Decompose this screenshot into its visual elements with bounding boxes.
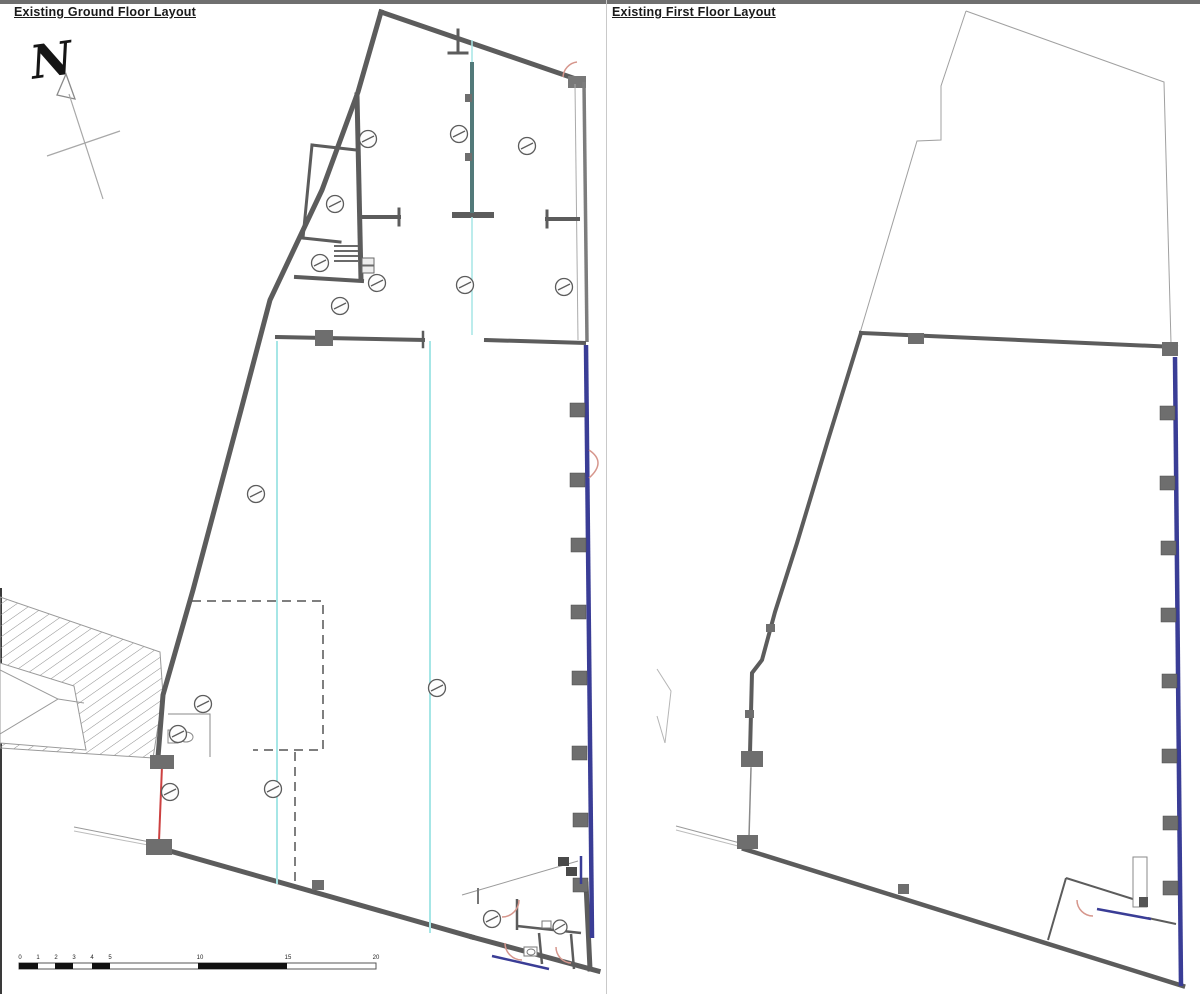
north-arrow-crossbar [47,131,120,156]
scale-label-5: 5 [108,955,112,961]
first-west-pier-lower [737,835,758,849]
neighbour-roof-faint [657,669,671,743]
scale-label-3: 3 [72,955,76,961]
scale-label-20: 20 [373,955,380,961]
west-red-segment [146,755,174,855]
scale-label-15: 15 [285,955,292,961]
marker [484,911,501,928]
first-door-swing [1077,900,1093,916]
marker [553,920,567,934]
setting-out-lines [277,40,472,933]
marker [556,279,573,296]
scale-label-0: 0 [18,955,22,961]
first-outer-walls [744,333,1183,986]
first-bottom-right-room [1048,857,1176,940]
reference-markers [162,126,573,935]
boundary-line [74,827,150,845]
scale-label-10: 10 [197,955,204,961]
first-south-wall [744,849,1183,986]
scale-bar: 0 1 2 3 4 5 10 15 20 [18,955,380,969]
mid-wall-pier [315,330,333,346]
west-wall [158,12,381,757]
scale-label-1: 1 [36,955,40,961]
marker [327,196,344,213]
mid-wall-right [486,340,584,343]
dashed-mezzanine-outline [192,601,323,886]
west-pier-upper [150,755,174,769]
fixture [1139,897,1148,907]
marker [170,726,187,743]
ground-floor-plan [0,12,598,971]
south-wall-pier [312,880,324,890]
west-pier-lower [146,839,172,855]
mid-wall-left [277,337,423,340]
marker [265,781,282,798]
east-door-swing [589,450,598,478]
neighbour-hatched-building [0,597,163,758]
scale-bar-labels: 0 1 2 3 4 5 10 15 20 [18,955,380,961]
east-window-outer [584,82,587,342]
north-arrow: N [25,30,120,199]
south-wall [170,851,472,937]
marker [312,255,329,272]
east-window-inner [575,84,578,340]
first-floor-plan [657,11,1183,986]
first-north-wall-pier [908,333,924,344]
boundary-line-first [676,826,740,846]
first-east-wall [1160,357,1181,986]
marker [369,275,386,292]
marker [519,138,536,155]
east-wall [563,62,598,938]
drawing-sheet: Existing Ground Floor Layout Existing Fi… [0,0,1200,994]
marker [248,486,265,503]
marker [360,131,377,148]
marker [429,680,446,697]
scale-label-2: 2 [54,955,58,961]
east-party-wall-blue [586,345,592,938]
ground-outer-walls [158,12,598,971]
marker [162,784,179,801]
north-arrow-label: N [25,30,78,90]
marker [195,696,212,713]
floor-plan-canvas: N [0,0,1200,994]
marker [457,277,474,294]
stair-core-wall [357,95,361,280]
roof-extent-outline [860,11,1171,343]
red-wall-line [159,766,162,841]
first-south-wall-nub [898,884,909,894]
marker [451,126,468,143]
first-northeast-pier [1162,342,1178,356]
first-west-pier-upper [741,751,763,767]
staircase [334,246,374,273]
first-west-wall [750,333,861,753]
north-wall [381,12,576,79]
marker [332,298,349,315]
scale-label-4: 4 [90,955,94,961]
